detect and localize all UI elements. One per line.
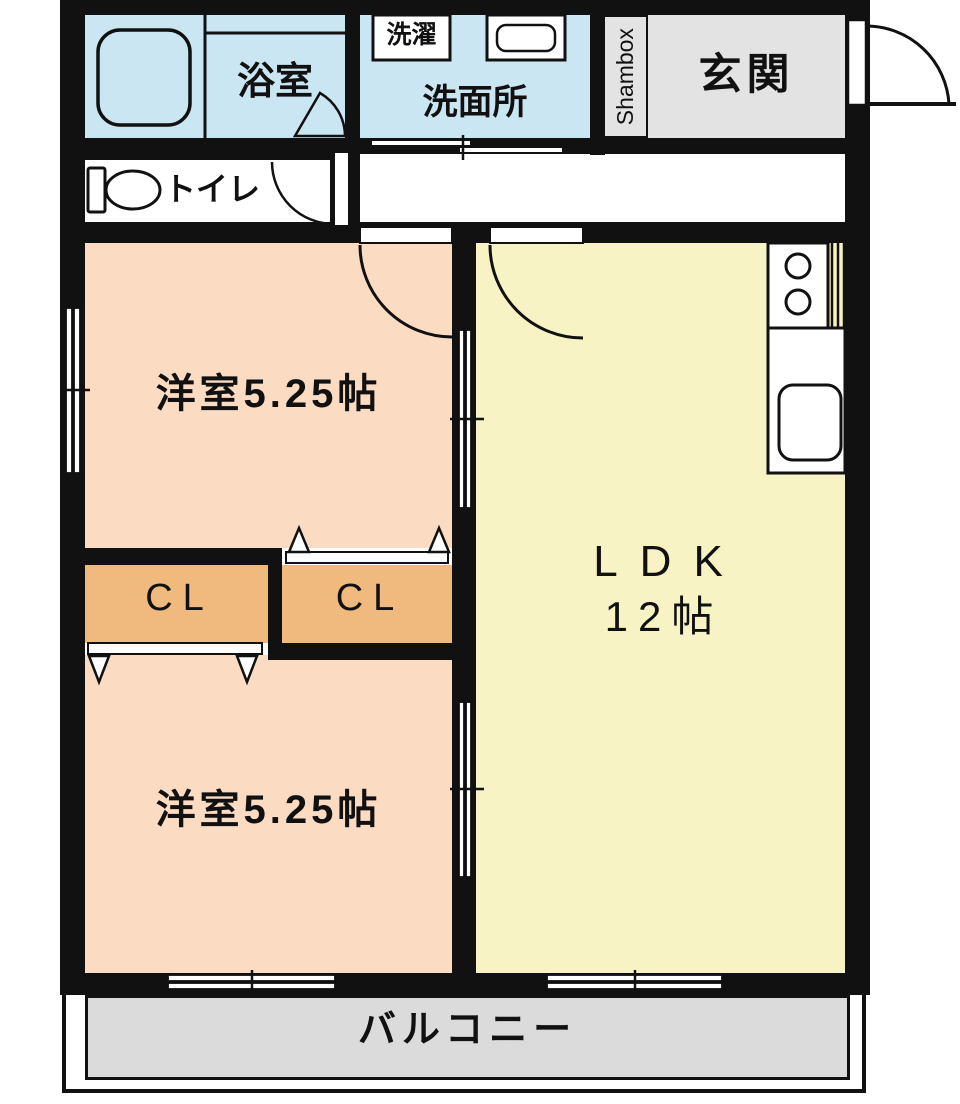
wall-closet-divider — [268, 548, 282, 660]
western-room-2-label: 洋室5.25帖 — [85, 788, 452, 832]
wall-bath-washroom — [345, 0, 360, 155]
balcony-label: バルコニー — [85, 1010, 850, 1052]
wall-bottom — [60, 973, 870, 995]
ldk-label: LDK 12帖 — [510, 538, 810, 641]
floor-plan: 浴室 洗濯 洗面所 Shambox 玄関 トイレ 洋室5.25帖 CL CL L… — [0, 0, 960, 1104]
closet-right-label: CL — [282, 578, 452, 620]
wall-corridor-bottom — [60, 222, 870, 243]
entrance-door-arc — [866, 26, 949, 104]
wall-closet-bottom — [282, 643, 476, 660]
entrance-label: 玄関 — [648, 52, 845, 99]
ldk-size: 12帖 — [510, 594, 810, 640]
toilet-label: トイレ — [152, 172, 272, 207]
ldk-name: LDK — [510, 538, 810, 586]
western-room-1-label: 洋室5.25帖 — [85, 372, 452, 416]
wall-closet-top — [60, 548, 268, 565]
wall-under-bath — [60, 138, 360, 160]
wall-center-vertical — [452, 243, 476, 973]
laundry-label: 洗濯 — [373, 22, 450, 50]
bath-label: 浴室 — [205, 62, 345, 104]
closet-left-label: CL — [85, 578, 268, 620]
wall-corridor-top — [345, 138, 870, 154]
washroom-label: 洗面所 — [360, 84, 590, 123]
wall-top — [60, 0, 870, 15]
shoebox-label: Shambox — [603, 15, 648, 138]
